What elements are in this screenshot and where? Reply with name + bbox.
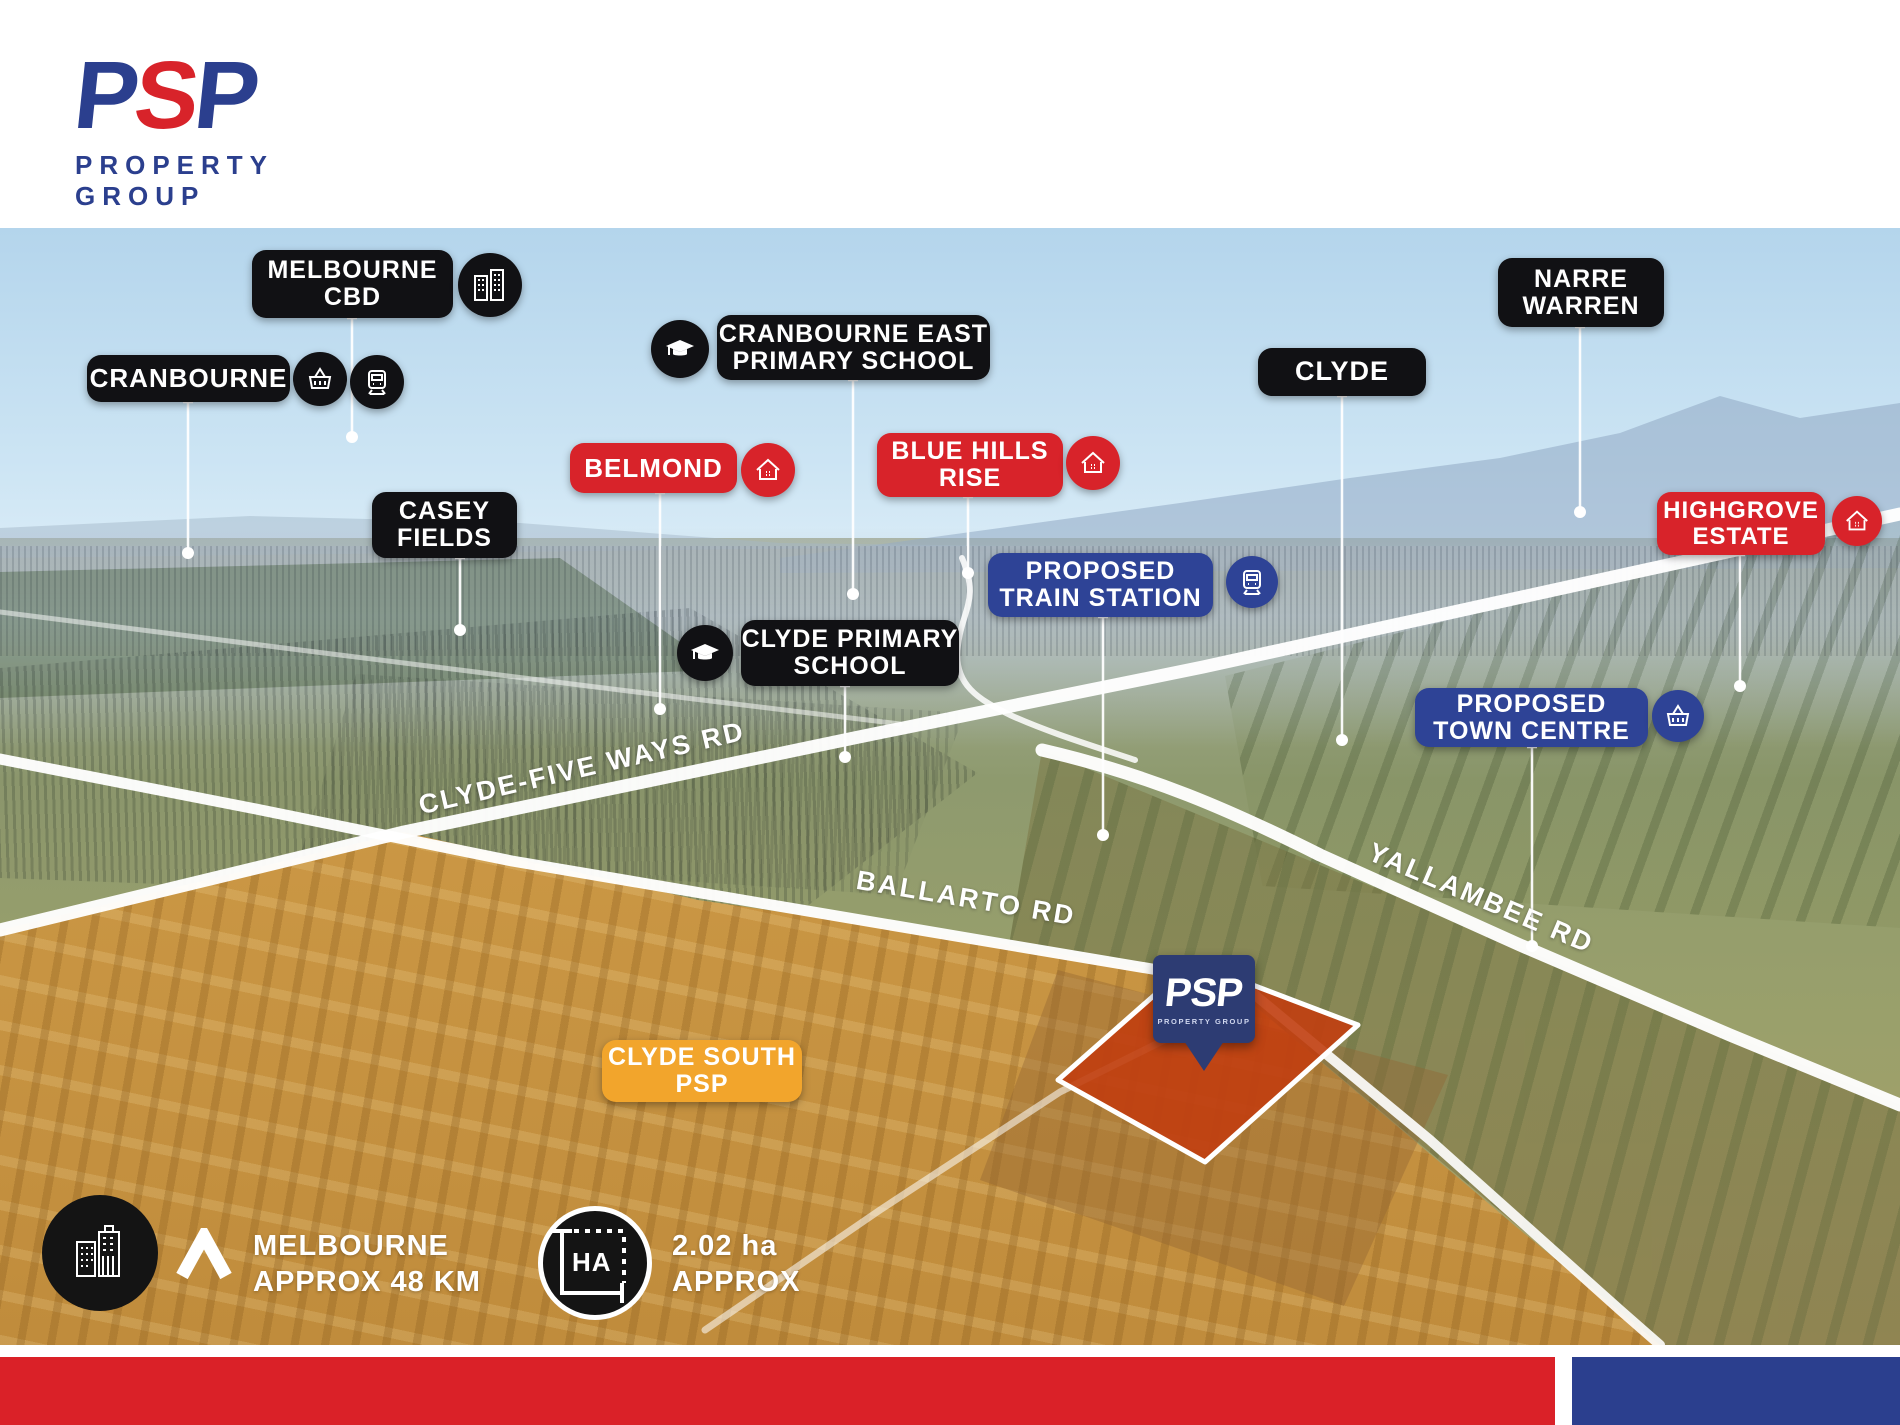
- home-icon: [1832, 496, 1882, 546]
- label-clyde-primary-school: CLYDE PRIMARYSCHOOL: [741, 620, 959, 686]
- label-clyde: CLYDE: [1258, 348, 1426, 396]
- shopping-basket-icon: [1652, 690, 1704, 742]
- pin-brand: PSP: [1163, 973, 1244, 1013]
- home-icon: [741, 443, 795, 497]
- label-belmond: BELMOND: [570, 443, 737, 493]
- city-buildings-icon: [458, 253, 522, 317]
- psp-logo-wordmark: PROPERTY GROUP: [75, 150, 335, 212]
- label-cranbourne-east-primary-school: CRANBOURNE EASTPRIMARY SCHOOL: [717, 315, 990, 380]
- home-icon: [1066, 436, 1120, 490]
- footer-red-bar: [0, 1357, 1555, 1425]
- graduation-cap-icon: [677, 625, 733, 681]
- pin-sub-brand: PROPERTY GROUP: [1157, 1017, 1250, 1026]
- label-narre-warren: NARREWARREN: [1498, 258, 1664, 327]
- psp-map-pin: PSP PROPERTY GROUP: [1153, 955, 1255, 1043]
- label-highgrove-estate: HIGHGROVEESTATE: [1657, 492, 1825, 555]
- label-melbourne-cbd: MELBOURNECBD: [252, 250, 453, 318]
- label-proposed-town-centre: PROPOSEDTOWN CENTRE: [1415, 688, 1648, 747]
- label-cranbourne: CRANBOURNE: [87, 355, 290, 402]
- shopping-basket-icon: [293, 352, 347, 406]
- label-clyde-south-psp: CLYDE SOUTHPSP: [602, 1040, 802, 1102]
- header: PSP PROPERTY GROUP: [0, 0, 1900, 228]
- label-casey-fields: CASEYFIELDS: [372, 492, 517, 558]
- footer-blue-bar: [1572, 1357, 1900, 1425]
- train-icon: [1226, 556, 1278, 608]
- city-buildings-icon: [42, 1195, 158, 1311]
- psp-logo: PSP PROPERTY GROUP: [75, 48, 335, 212]
- label-blue-hills-rise: BLUE HILLSRISE: [877, 433, 1063, 497]
- site-map-flyer: PSP PROPERTY GROUP: [0, 0, 1900, 1425]
- psp-logo-letters: PSP: [70, 48, 260, 144]
- hectare-icon: HA: [538, 1206, 652, 1320]
- graduation-cap-icon: [651, 320, 709, 378]
- area-text: 2.02 ha APPROX: [672, 1228, 800, 1301]
- hectare-icon-label: HA: [572, 1247, 612, 1278]
- distance-text: MELBOURNE APPROX 48 KM: [253, 1228, 481, 1301]
- label-proposed-train-station: PROPOSEDTRAIN STATION: [988, 553, 1213, 617]
- train-icon: [350, 355, 404, 409]
- distance-caret-icon: [176, 1228, 232, 1280]
